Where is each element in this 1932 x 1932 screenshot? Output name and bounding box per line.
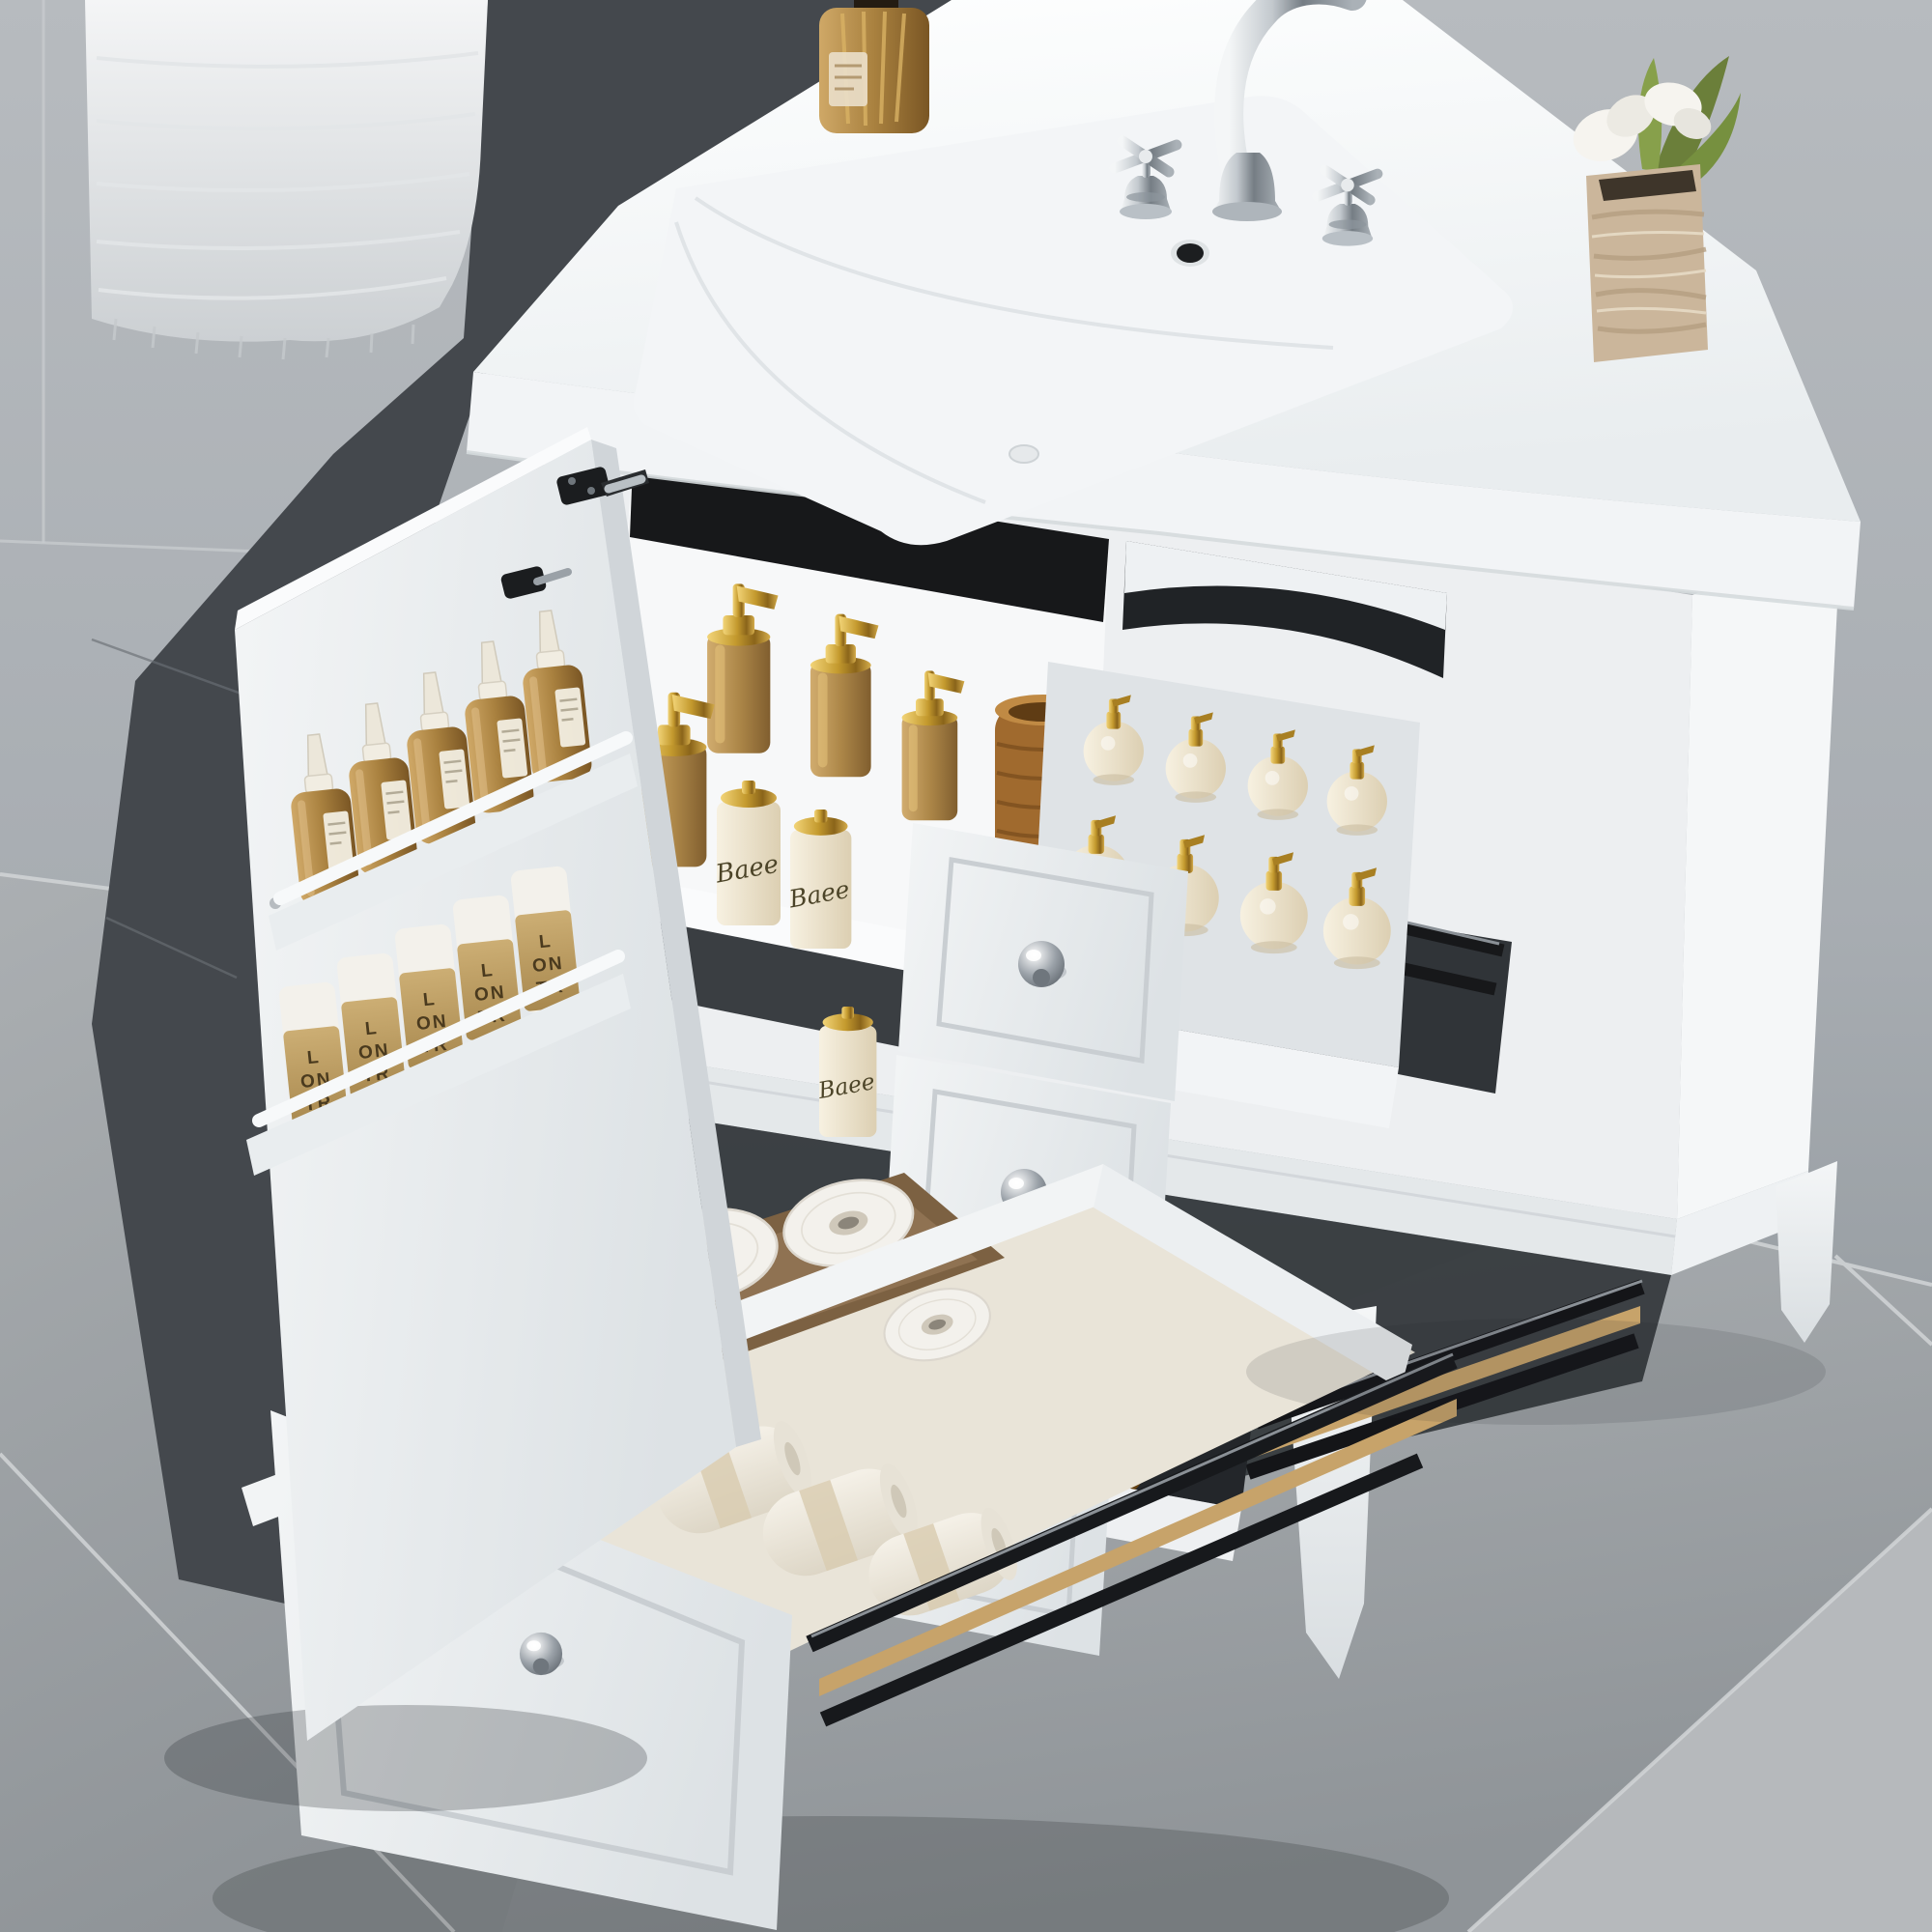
- product-photo-bathroom-vanity: L ON TR SOAP handmade: [0, 0, 1932, 1932]
- baee-bottle-floor: [815, 1007, 877, 1137]
- door-floor-shadow: [164, 1705, 647, 1811]
- hanging-towel: [85, 0, 488, 359]
- baee-bottle: [713, 781, 781, 925]
- overflow-hole: [1171, 240, 1209, 267]
- baee-bottle: [786, 810, 852, 949]
- sink-drain: [1009, 445, 1038, 463]
- floor-shadow-right: [1246, 1319, 1826, 1425]
- diffuser-bottle: [819, 0, 929, 133]
